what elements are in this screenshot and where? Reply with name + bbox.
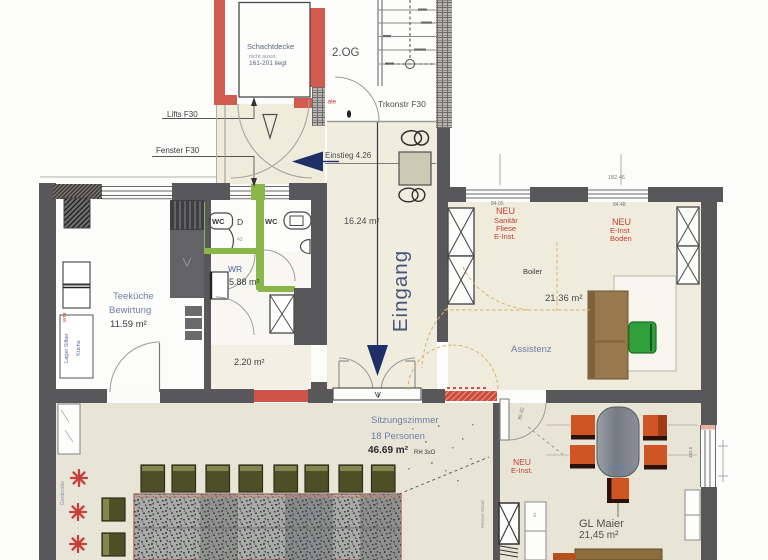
svg-text:NEU: NEU — [496, 206, 515, 216]
svg-text:46.69 m²: 46.69 m² — [368, 445, 409, 456]
svg-text:Lifts F30: Lifts F30 — [167, 110, 198, 119]
svg-text:RH 3xO: RH 3xO — [414, 450, 436, 456]
svg-text:Assistenz: Assistenz — [511, 344, 552, 355]
svg-text:5.88 m²: 5.88 m² — [229, 277, 260, 287]
svg-text:E-Inst.: E-Inst. — [494, 232, 516, 241]
svg-text:162.5: 162.5 — [688, 446, 693, 458]
svg-text:21,45 m²: 21,45 m² — [579, 530, 619, 541]
svg-text:11.59 m²: 11.59 m² — [110, 319, 147, 330]
svg-text:42: 42 — [237, 237, 243, 243]
svg-text:Sitzungszimmer: Sitzungszimmer — [371, 415, 439, 426]
svg-text:182.46: 182.46 — [608, 175, 625, 181]
svg-text:Lager Silber: Lager Silber — [64, 333, 70, 363]
svg-text:18 Personen: 18 Personen — [371, 431, 425, 442]
svg-text:Boden: Boden — [610, 234, 632, 243]
svg-text:Schachtdecke: Schachtdecke — [247, 42, 294, 51]
svg-text:161-201 liegt: 161-201 liegt — [249, 60, 287, 67]
svg-text:2.OG: 2.OG — [332, 47, 360, 59]
svg-text:D: D — [237, 217, 243, 227]
svg-text:21.36 m²: 21.36 m² — [545, 293, 583, 304]
svg-text:WC: WC — [212, 217, 225, 226]
svg-text:Einstieg 4.26: Einstieg 4.26 — [325, 151, 372, 160]
svg-text:84.48: 84.48 — [613, 202, 626, 208]
svg-text:E-Inst.: E-Inst. — [511, 466, 533, 475]
svg-text:GL Maier: GL Maier — [579, 518, 624, 530]
svg-text:Teeküche: Teeküche — [113, 291, 154, 302]
svg-text:Bewirtung: Bewirtung — [109, 305, 151, 316]
svg-text:Küche: Küche — [76, 340, 82, 356]
svg-text:Weisse Wand: Weisse Wand — [480, 500, 485, 528]
svg-text:Fenster F30: Fenster F30 — [156, 146, 200, 155]
svg-text:16.24 m²: 16.24 m² — [344, 216, 380, 226]
svg-text:Eingang: Eingang — [389, 250, 412, 332]
svg-text:WC: WC — [265, 217, 278, 226]
svg-text:2.20 m²: 2.20 m² — [234, 357, 265, 367]
svg-text:WR: WR — [228, 264, 242, 274]
svg-text:Trkonstr F30: Trkonstr F30 — [378, 99, 426, 109]
svg-text:85: 85 — [532, 512, 537, 517]
svg-text:Boiler: Boiler — [523, 267, 543, 276]
svg-text:190x90: 190x90 — [609, 466, 626, 472]
svg-text:ale: ale — [328, 99, 337, 106]
svg-text:WT8: WT8 — [62, 312, 67, 322]
svg-text:Garderobe: Garderobe — [60, 481, 66, 505]
svg-text:84.05: 84.05 — [491, 201, 504, 207]
